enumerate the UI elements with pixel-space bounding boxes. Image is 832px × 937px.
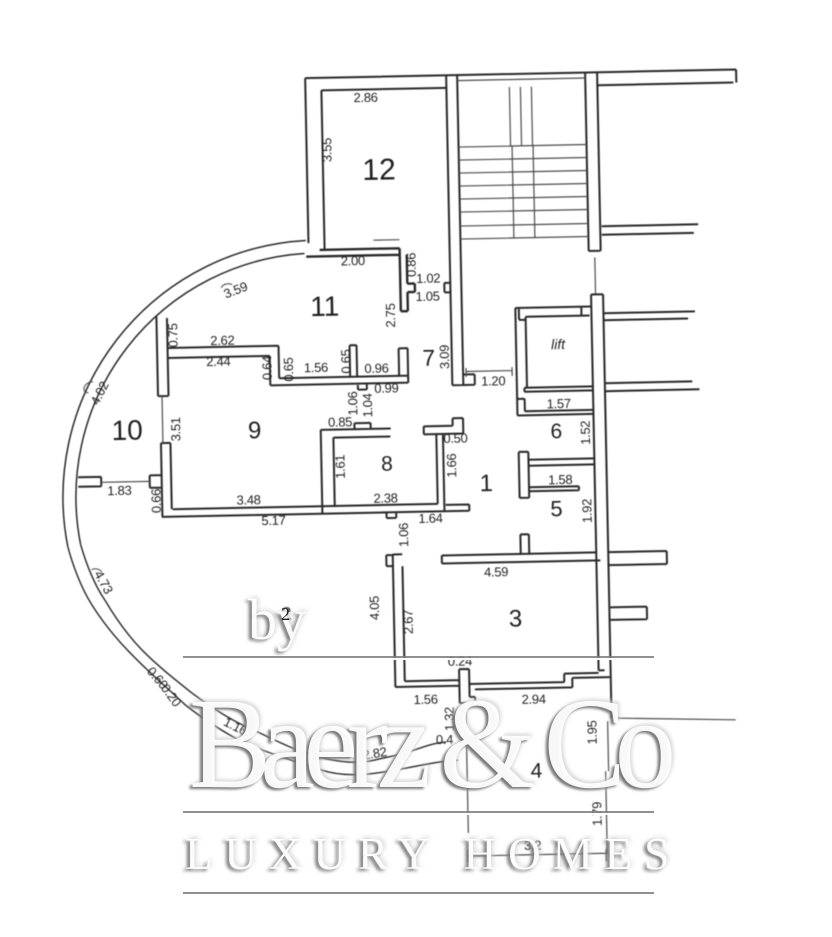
svg-text:1.66: 1.66	[444, 453, 459, 477]
svg-text:8: 8	[381, 452, 393, 475]
svg-text:3: 3	[509, 605, 523, 632]
svg-text:0.96: 0.96	[364, 361, 388, 376]
svg-text:1.06: 1.06	[396, 523, 411, 547]
svg-text:2.75: 2.75	[383, 303, 398, 327]
svg-text:12: 12	[362, 153, 396, 187]
svg-text:2.86: 2.86	[353, 90, 377, 105]
svg-text:1.57: 1.57	[547, 396, 571, 411]
svg-text:0.86: 0.86	[403, 253, 418, 277]
svg-text:4.59: 4.59	[484, 564, 508, 579]
svg-text:10: 10	[111, 414, 143, 446]
svg-text:3.48: 3.48	[236, 492, 260, 507]
svg-text:9: 9	[248, 417, 262, 444]
svg-text:3.55: 3.55	[319, 138, 334, 162]
svg-text:1.92: 1.92	[579, 499, 594, 523]
svg-text:2.67: 2.67	[400, 610, 415, 634]
svg-text:0.50: 0.50	[443, 430, 467, 445]
svg-text:1.20: 1.20	[481, 373, 505, 388]
svg-text:0.64: 0.64	[259, 356, 274, 380]
svg-text:0.65: 0.65	[281, 357, 296, 381]
svg-text:6: 6	[550, 420, 562, 443]
svg-text:1.58: 1.58	[548, 472, 572, 487]
svg-text:0.65: 0.65	[338, 349, 353, 373]
svg-text:4.05: 4.05	[367, 596, 382, 620]
svg-text:2.00: 2.00	[341, 253, 365, 268]
svg-text:5.17: 5.17	[261, 513, 285, 528]
svg-text:1.64: 1.64	[418, 510, 442, 525]
svg-text:11: 11	[310, 291, 340, 323]
svg-text:7: 7	[422, 345, 435, 371]
svg-text:1.83: 1.83	[107, 483, 131, 498]
svg-text:1: 1	[479, 470, 493, 497]
svg-text:2.44: 2.44	[206, 354, 230, 369]
svg-text:2.38: 2.38	[373, 490, 397, 505]
svg-text:1.06: 1.06	[345, 391, 360, 415]
svg-text:0.66: 0.66	[148, 489, 163, 513]
svg-text:3.51: 3.51	[168, 417, 183, 441]
svg-text:2.62: 2.62	[210, 333, 234, 348]
svg-text:1.61: 1.61	[332, 455, 347, 479]
svg-text:1.04: 1.04	[360, 393, 375, 417]
svg-text:1.56: 1.56	[304, 360, 328, 375]
svg-text:0.99: 0.99	[374, 380, 398, 395]
svg-text:3.09: 3.09	[437, 345, 452, 369]
svg-text:3.59: 3.59	[222, 279, 250, 302]
svg-text:1.05: 1.05	[415, 288, 439, 303]
svg-text:5: 5	[550, 496, 563, 521]
svg-text:0.75: 0.75	[165, 323, 180, 347]
svg-text:1.52: 1.52	[578, 421, 593, 445]
svg-text:4.02: 4.02	[87, 379, 111, 407]
svg-text:lift: lift	[551, 336, 566, 352]
svg-text:1.02: 1.02	[416, 270, 440, 285]
